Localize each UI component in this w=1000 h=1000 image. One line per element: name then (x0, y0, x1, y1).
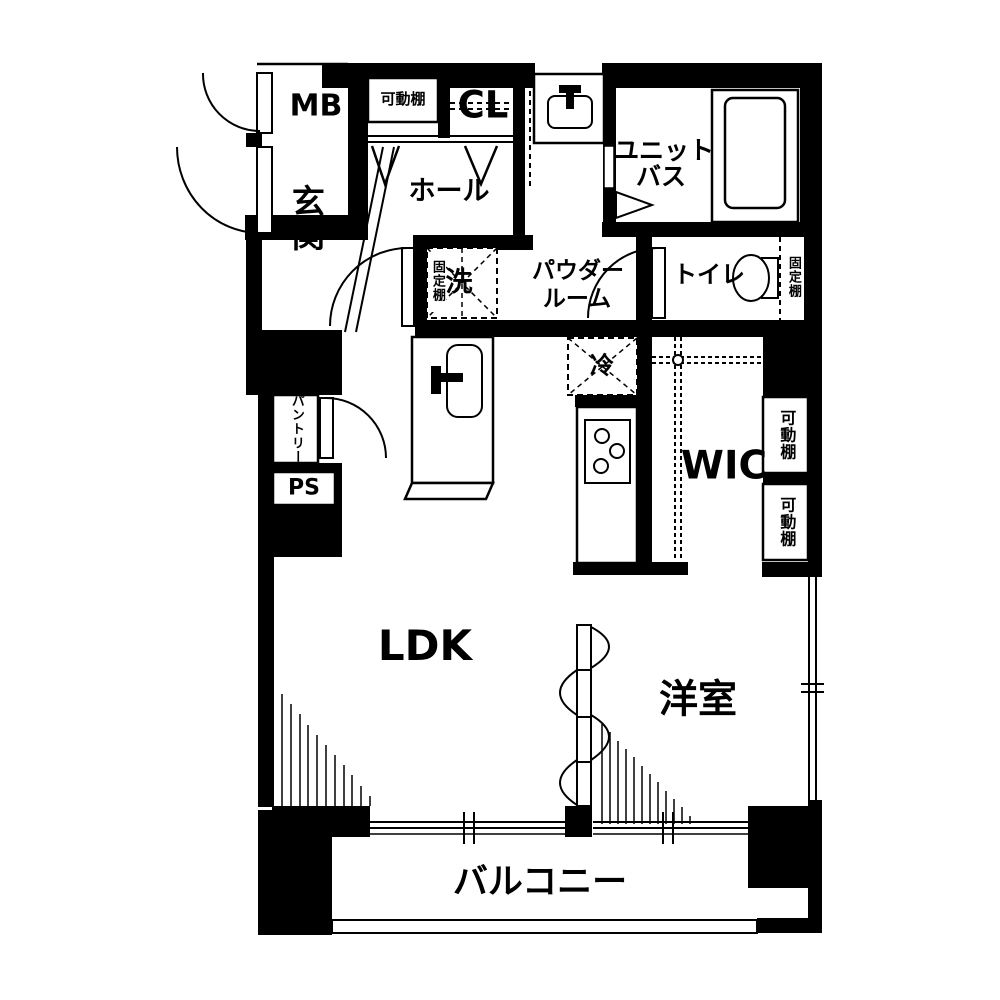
room-label-entrance: 玄関 (288, 184, 323, 252)
floor-plan-drawing (0, 0, 1000, 1000)
label-washer: 洗 (446, 269, 473, 297)
floor-plan: MB 可動棚 CL ユニット バス 玄関 ホール 洗 固定棚 パウダー ルーム … (0, 0, 1000, 1000)
kitchen-counter-icon (405, 337, 493, 499)
room-label-balcony: バルコニー (453, 865, 627, 902)
closet-divider-wall (438, 78, 450, 138)
room-label-mb: MB (290, 90, 343, 122)
wall-gap (535, 58, 602, 75)
hall-door (330, 248, 414, 326)
label-ps: PS (288, 476, 320, 499)
entrance-door (177, 147, 272, 233)
room-label-powder-1: パウダー (532, 259, 624, 283)
balcony-window-icon (370, 812, 750, 844)
door-arc-icon (203, 73, 260, 131)
door-arc-icon (326, 398, 386, 458)
hatch-lines-western-room (602, 724, 690, 824)
label-movable-shelf-1: 可動棚 (778, 410, 795, 461)
balcony-edge (332, 920, 757, 933)
room-label-ldk: LDK (378, 624, 472, 668)
room-label-unit-bath-1: ユニット (614, 138, 714, 164)
room-label-hall: ホール (409, 178, 490, 206)
room-label-wic: WIC (681, 447, 767, 488)
stove-icon (577, 407, 637, 563)
label-movable-shelf-top: 可動棚 (380, 92, 425, 108)
bathtub-icon (712, 90, 798, 222)
hatch-lines-ldk (282, 694, 370, 806)
room-label-closet: CL (458, 87, 509, 126)
room-label-western-room: 洋室 (659, 681, 737, 722)
room-label-powder-2: ルーム (543, 287, 611, 311)
door-arc-icon (330, 248, 408, 326)
room-label-unit-bath-2: バス (636, 164, 686, 190)
label-pantry: パントリー (289, 394, 303, 464)
wic-pipe-joint (673, 355, 683, 365)
washbasin-icon (534, 74, 604, 143)
room-label-toilet: トイレ (673, 262, 745, 287)
label-movable-shelf-2: 可動棚 (778, 497, 795, 548)
side-window-icon (801, 577, 824, 800)
label-refrigerator: 冷 (590, 353, 614, 378)
label-fixed-shelf-toilet: 固定棚 (786, 256, 800, 298)
mb-door (203, 73, 272, 133)
pantry-door (320, 398, 386, 458)
closet-front-track (368, 136, 513, 142)
label-fixed-shelf-washer: 固定棚 (430, 260, 444, 302)
